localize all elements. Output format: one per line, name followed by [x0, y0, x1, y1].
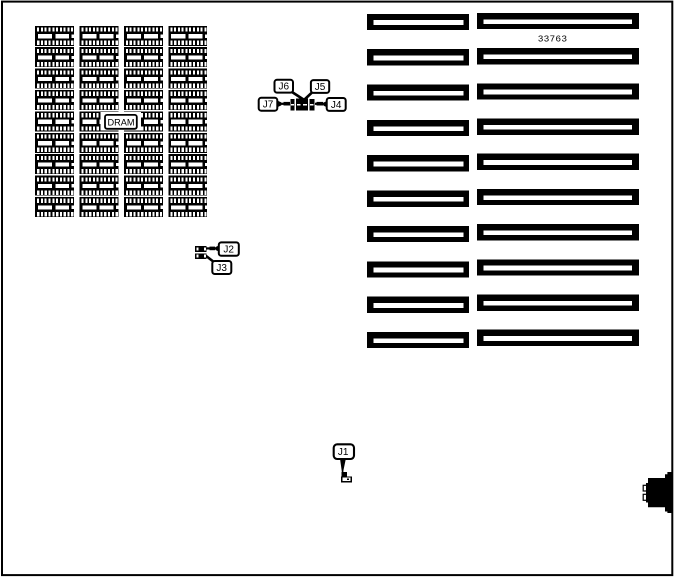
svg-text:J5: J5 [315, 82, 326, 93]
svg-text:J1: J1 [338, 447, 349, 458]
svg-text:DRAM: DRAM [107, 117, 134, 127]
svg-text:J6: J6 [279, 82, 290, 93]
svg-text:J4: J4 [331, 100, 342, 111]
svg-text:33763: 33763 [538, 33, 568, 44]
svg-text:J7: J7 [263, 100, 274, 111]
svg-text:J3: J3 [216, 263, 227, 274]
svg-text:J2: J2 [223, 245, 234, 256]
